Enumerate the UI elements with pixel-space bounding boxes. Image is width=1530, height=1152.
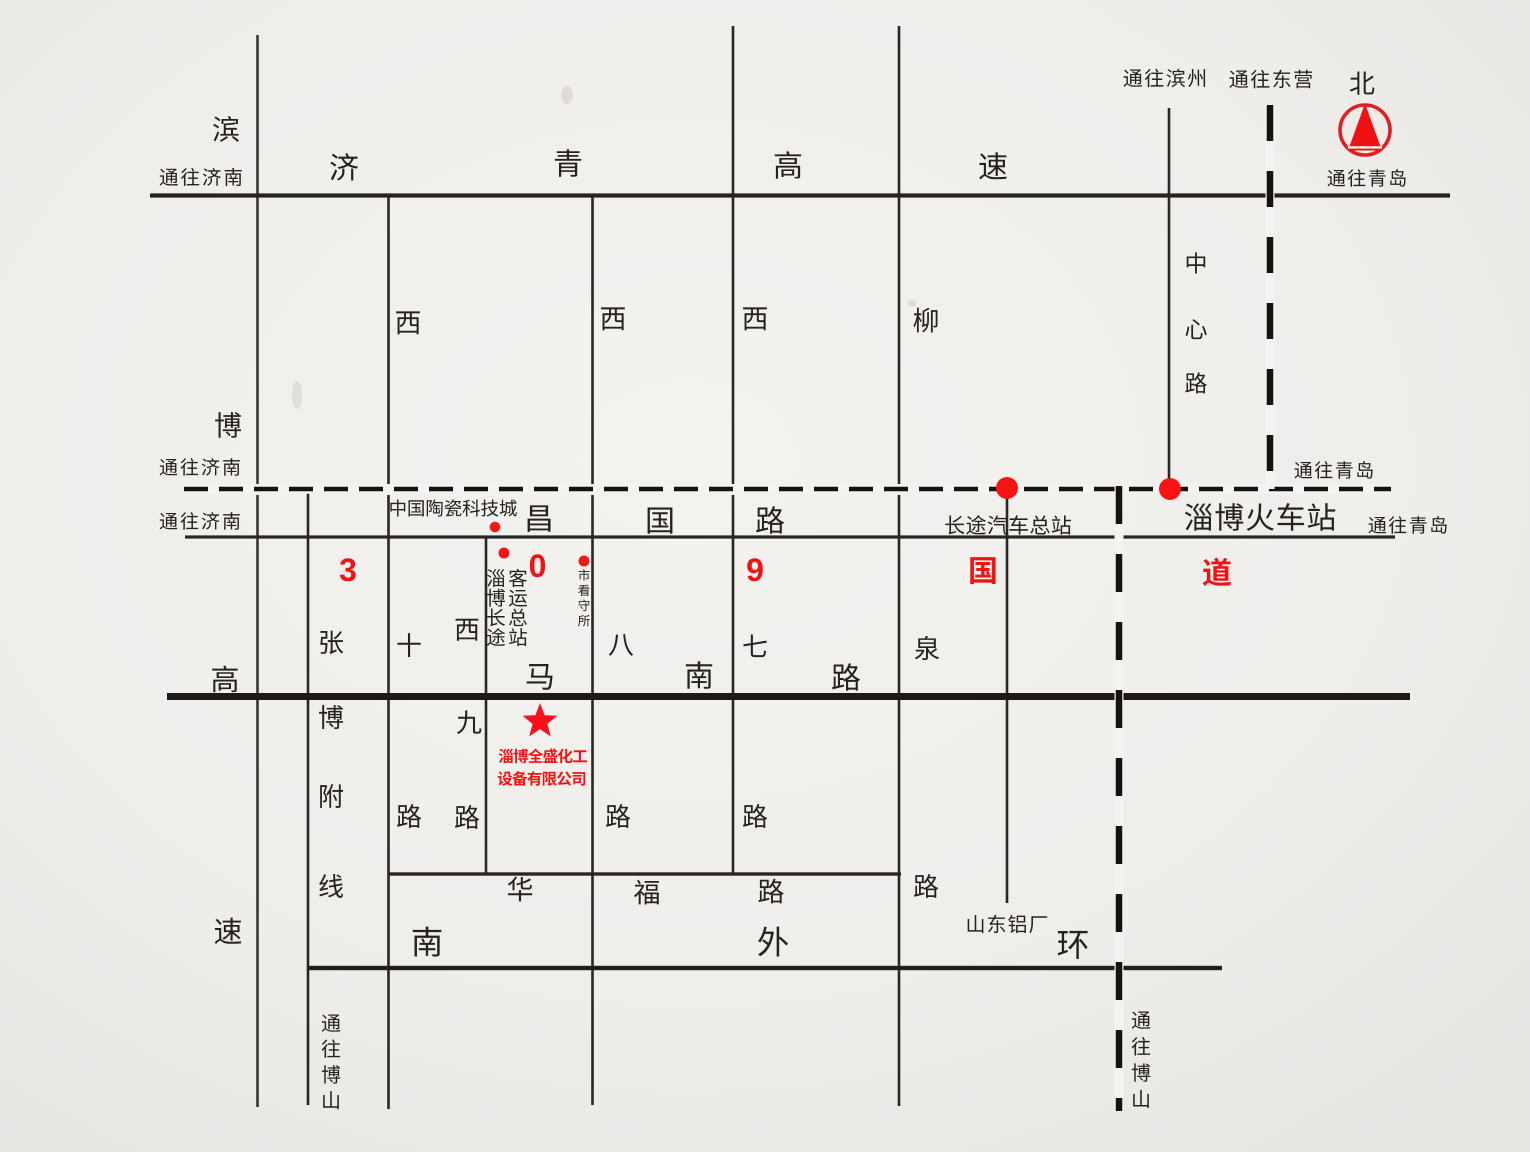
svg-text:0: 0	[529, 548, 547, 584]
svg-text:3: 3	[339, 552, 357, 588]
svg-text:9: 9	[746, 552, 764, 588]
